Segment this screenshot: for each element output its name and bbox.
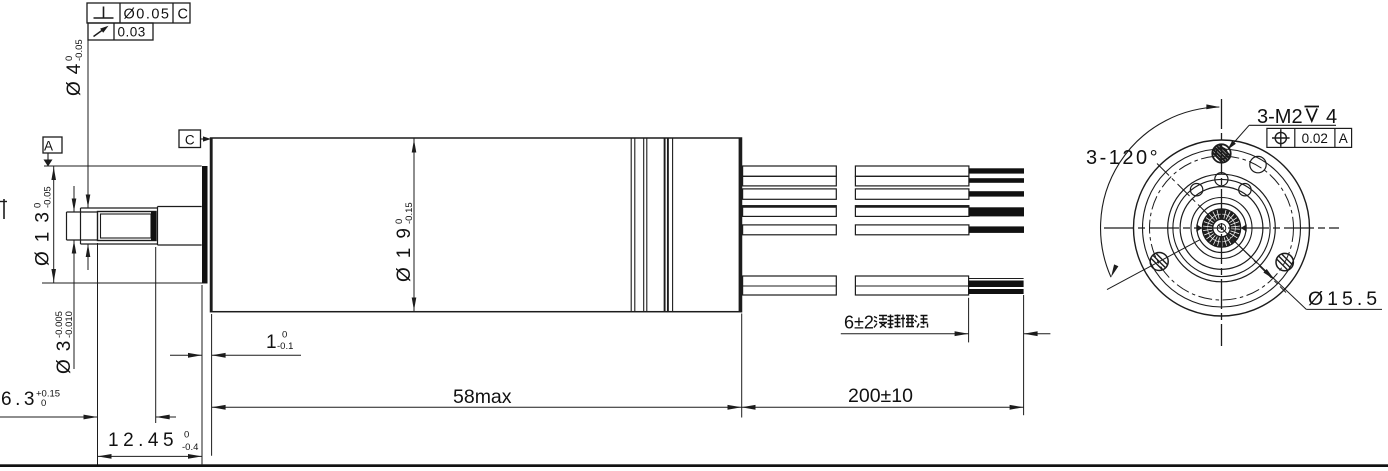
- svg-text:+0.15: +0.15: [36, 389, 60, 400]
- svg-text:-0.1: -0.1: [277, 341, 293, 352]
- svg-text:-0.010: -0.010: [64, 311, 75, 338]
- svg-text:4: 4: [1326, 106, 1337, 128]
- svg-text:200±10: 200±10: [848, 385, 913, 407]
- svg-text:C: C: [185, 133, 195, 148]
- svg-text:0: 0: [41, 398, 46, 409]
- svg-text:3-M2: 3-M2: [1257, 106, 1303, 128]
- svg-text:1: 1: [266, 332, 277, 353]
- svg-text:-0.05: -0.05: [74, 39, 85, 61]
- svg-text:Ø4: Ø4: [64, 57, 85, 96]
- svg-text:-0.15: -0.15: [404, 202, 415, 224]
- svg-text:0: 0: [282, 330, 287, 341]
- svg-text:3-120°: 3-120°: [1086, 147, 1160, 169]
- svg-text:-0.4: -0.4: [182, 442, 198, 453]
- svg-text:Ø15.5: Ø15.5: [1308, 288, 1381, 310]
- svg-text:58max: 58max: [453, 386, 512, 408]
- svg-text:C: C: [178, 7, 188, 23]
- svg-text:0: 0: [184, 430, 189, 441]
- svg-text:6.3: 6.3: [1, 389, 38, 410]
- svg-text:A: A: [44, 139, 53, 154]
- svg-text:12.45: 12.45: [108, 430, 178, 451]
- svg-text:Ø19: Ø19: [394, 219, 415, 282]
- svg-text:A: A: [1339, 131, 1348, 146]
- svg-text:6±2: 6±2: [844, 313, 874, 333]
- svg-text:Ø13: Ø13: [33, 203, 54, 266]
- svg-text:0.03: 0.03: [118, 25, 146, 40]
- svg-text:-0.05: -0.05: [43, 186, 54, 208]
- svg-text:0.02: 0.02: [1302, 131, 1328, 146]
- svg-text:Ø0.05: Ø0.05: [124, 7, 171, 23]
